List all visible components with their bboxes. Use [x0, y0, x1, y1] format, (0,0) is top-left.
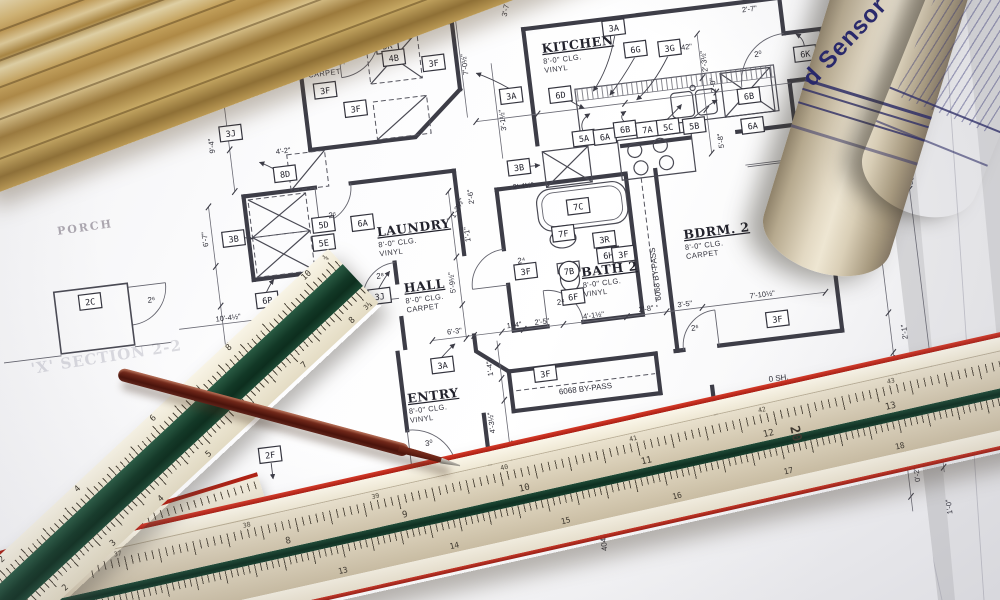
callout-box: 3F: [344, 100, 368, 118]
ruler-number: 3: [108, 538, 119, 549]
svg-text:3F: 3F: [540, 369, 551, 380]
roll-line: [876, 120, 988, 167]
svg-text:VINYL: VINYL: [409, 413, 434, 425]
callout-box: 3R: [593, 231, 617, 249]
callout-box: 2C: [78, 293, 102, 311]
room-label-bdrm-2: BDRM. 28'-0" CLG.CARPET: [682, 219, 752, 261]
svg-text:2'-1": 2'-1": [899, 324, 910, 340]
callout-box: 4B: [382, 49, 406, 67]
ruler-number: 10: [518, 483, 531, 495]
svg-text:2'-8": 2'-8": [638, 303, 654, 314]
svg-text:VINYL: VINYL: [544, 63, 569, 75]
svg-text:VINYL: VINYL: [379, 246, 404, 258]
svg-text:2⁸: 2⁸: [376, 271, 385, 281]
callout-box: 3F: [533, 365, 557, 383]
callout-box: 3A: [499, 87, 523, 105]
svg-text:5A: 5A: [578, 134, 589, 145]
ruler-number: 5: [204, 449, 215, 460]
callout-box: 6B: [613, 120, 637, 138]
svg-text:5'-8": 5'-8": [715, 133, 726, 149]
bypass-note-vertical: 6068 BY-PASS: [648, 247, 663, 301]
svg-text:1'-0": 1'-0": [944, 499, 955, 515]
svg-text:6A: 6A: [599, 132, 610, 143]
svg-text:5D: 5D: [318, 220, 329, 231]
svg-text:2⁶: 2⁶: [328, 210, 337, 220]
burner: [633, 160, 649, 176]
svg-text:3F: 3F: [350, 105, 361, 116]
svg-text:6A: 6A: [747, 121, 758, 132]
svg-text:4'-3½": 4'-3½": [486, 412, 498, 434]
callout-box: 6A: [351, 214, 375, 232]
svg-text:2'-0": 2'-0": [708, 77, 719, 93]
ruler-number: 18: [894, 441, 905, 452]
svg-text:6'-3": 6'-3": [447, 326, 463, 337]
callout-box: 6F: [561, 288, 585, 306]
svg-text:2'-3½": 2'-3½": [698, 50, 710, 72]
svg-text:7C: 7C: [573, 202, 584, 213]
callout-box: 3F: [422, 54, 446, 72]
ruler-number: 9: [401, 510, 408, 521]
svg-text:1'-3½": 1'-3½": [448, 196, 466, 219]
ruler-fraction: 3¼: [362, 300, 374, 312]
svg-text:3G: 3G: [664, 44, 675, 55]
ruler-number: 14: [449, 540, 460, 551]
svg-text:VINYL: VINYL: [583, 287, 608, 299]
callout-box: 6G: [624, 40, 648, 58]
svg-text:3F: 3F: [618, 250, 629, 261]
svg-text:6A: 6A: [357, 219, 368, 230]
bypass-note-horizontal: 6068 BY-PASS: [558, 381, 612, 396]
svg-text:3J: 3J: [225, 129, 236, 140]
callout-box: 7A: [635, 120, 659, 138]
ruler-number: 13: [337, 565, 348, 576]
burner: [659, 155, 675, 171]
svg-text:2F: 2F: [265, 451, 276, 462]
callout-box: 5C: [656, 118, 680, 136]
svg-text:1'-4": 1'-4": [484, 360, 495, 376]
callout-box: 3F: [611, 245, 635, 263]
svg-text:6B: 6B: [743, 92, 754, 103]
svg-text:7F: 7F: [558, 229, 569, 240]
photo-of-blueprints: WALK-IN8'-0" CLG.CARPET KITCHEN8'-0" CLG…: [0, 0, 1000, 600]
callout-box: 3B: [507, 158, 531, 176]
svg-text:3A: 3A: [506, 92, 517, 103]
room-label-hall: HALL8'-0" CLG.CARPET: [403, 276, 448, 315]
callout-box: 6D: [549, 86, 573, 104]
callout-box: 5E: [312, 234, 336, 252]
svg-text:2⁴: 2⁴: [517, 256, 526, 266]
svg-text:5B: 5B: [689, 121, 700, 132]
ruler-number: 12: [762, 428, 775, 440]
callout-box: 2F: [258, 446, 282, 464]
svg-text:6'-7": 6'-7": [200, 231, 211, 247]
svg-text:4B: 4B: [388, 54, 399, 65]
callout-box: 3G: [658, 39, 682, 57]
svg-text:2⁶: 2⁶: [147, 295, 156, 305]
callout-box: 8D: [273, 165, 297, 183]
svg-text:2'-7": 2'-7": [741, 4, 757, 15]
svg-text:5'-9½": 5'-9½": [446, 271, 458, 293]
svg-text:2⁰: 2⁰: [754, 49, 763, 59]
callout-box: 5A: [572, 129, 596, 147]
svg-text:6G: 6G: [630, 45, 641, 56]
callout-box: 5B: [682, 117, 706, 135]
ruler-number: 4: [156, 493, 167, 504]
svg-text:6D: 6D: [555, 91, 566, 102]
faucet: [690, 85, 696, 91]
svg-text:3F: 3F: [520, 267, 531, 278]
svg-text:4'-2": 4'-2": [275, 145, 291, 156]
svg-text:5C: 5C: [663, 123, 674, 134]
svg-text:3B: 3B: [513, 163, 524, 174]
svg-text:3'-5": 3'-5": [677, 299, 693, 310]
callout-box: 3B: [222, 230, 246, 248]
callout-box: 7F: [552, 224, 576, 242]
svg-text:3F: 3F: [320, 86, 331, 97]
svg-text:3B: 3B: [228, 234, 239, 245]
callout-box: 6A: [741, 117, 765, 135]
svg-text:1'-1": 1'-1": [462, 226, 473, 242]
callout-box: 3J: [219, 124, 243, 142]
room-label-laundry: LAUNDRY8'-0" CLG.VINYL: [376, 215, 454, 258]
svg-text:3A: 3A: [437, 361, 448, 372]
svg-text:2'-5": 2'-5": [534, 316, 550, 327]
svg-text:ENTRY: ENTRY: [406, 385, 460, 406]
callout-box: 3A: [602, 19, 626, 37]
svg-text:2C: 2C: [85, 297, 96, 308]
svg-text:7A: 7A: [642, 125, 653, 136]
callout-box: 3F: [313, 81, 337, 99]
ruler-number: 8: [347, 315, 358, 326]
callout-box: 3A: [431, 356, 455, 374]
svg-text:3F: 3F: [772, 315, 783, 326]
ruler-number: 15: [560, 515, 571, 526]
svg-text:6B: 6B: [620, 125, 631, 136]
svg-text:3'-1½": 3'-1½": [497, 109, 509, 131]
svg-text:7'-0½": 7'-0½": [459, 53, 471, 75]
svg-text:3A: 3A: [608, 24, 619, 35]
callout-box: 7C: [566, 197, 590, 215]
svg-text:1'-4": 1'-4": [506, 320, 522, 331]
svg-text:3⁰: 3⁰: [425, 438, 434, 448]
room-label-bath-2: BATH 28'-0" CLG.VINYL: [580, 258, 640, 299]
svg-text:2'-6": 2'-6": [465, 189, 476, 205]
ruler-number: 17: [783, 466, 794, 477]
svg-text:7B: 7B: [563, 267, 574, 278]
ruler-number: 2: [60, 583, 71, 594]
ruler-number: 16: [671, 491, 682, 502]
room-label-entry: ENTRY8'-0" CLG.VINYL: [406, 385, 462, 425]
svg-text:9'-4": 9'-4": [206, 138, 217, 154]
callout-box: 6B: [737, 87, 761, 105]
ruler-number: 7: [299, 360, 310, 371]
svg-text:6F: 6F: [568, 292, 579, 303]
ruler-number: 11: [640, 455, 653, 467]
callout-box: 3F: [766, 310, 790, 328]
svg-text:3'-7: 3'-7: [500, 4, 511, 18]
svg-text:42": 42": [681, 42, 693, 52]
ruler-number: 13: [884, 401, 897, 413]
svg-text:3F: 3F: [428, 59, 439, 70]
svg-text:2'-4½": 2'-4½": [512, 180, 534, 192]
svg-text:8D: 8D: [279, 170, 290, 181]
svg-text:2⁶: 2⁶: [690, 323, 699, 333]
ruler-number: 8: [285, 536, 292, 547]
callout-box: 6A: [593, 128, 617, 146]
